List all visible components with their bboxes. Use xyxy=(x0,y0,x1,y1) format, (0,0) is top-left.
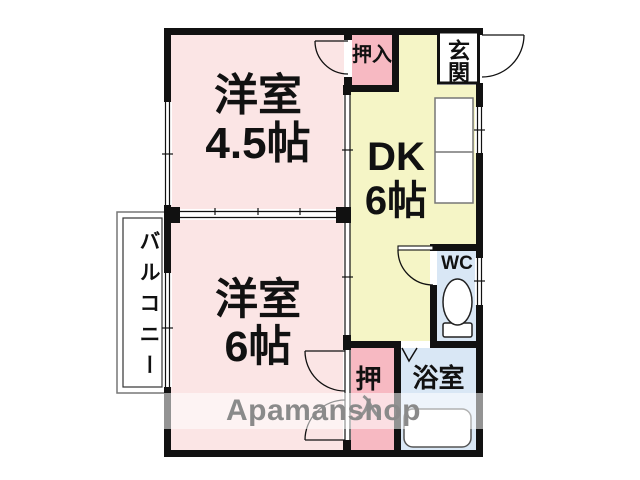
room-name: DK xyxy=(367,136,425,180)
closet-top-label: 押入 xyxy=(351,45,393,67)
sliding-partition-horizontal xyxy=(171,208,344,220)
watermark-band: Apamanshop xyxy=(164,393,483,429)
bathroom-label: 浴室 xyxy=(401,364,476,392)
wc-door-leaf xyxy=(398,246,433,250)
room-size: 6帖 xyxy=(365,180,427,224)
bath-door-opening xyxy=(401,341,430,348)
balcony-label: バルコニー xyxy=(136,222,159,392)
room-size: 4.5帖 xyxy=(205,120,310,168)
room-label-western-45: 洋室 4.5帖 xyxy=(171,72,345,168)
entrance-label: 玄関 xyxy=(443,37,469,85)
room-label-dk: DK 6帖 xyxy=(350,136,442,223)
room-label-western-6: 洋室 6帖 xyxy=(171,277,345,371)
entrance-door xyxy=(482,35,524,77)
room-size: 6帖 xyxy=(225,324,292,371)
toilet-icon xyxy=(443,279,472,337)
wc-door-opening xyxy=(430,251,437,285)
room-name: 洋室 xyxy=(214,72,302,120)
room-name: 洋室 xyxy=(215,277,301,324)
wc-label: WC xyxy=(437,254,477,275)
watermark-text: Apamanshop xyxy=(226,394,421,428)
floor-plan: 洋室 4.5帖 洋室 6帖 DK 6帖 押入 玄関 WC 押入 浴室 バルコニー… xyxy=(0,0,640,480)
